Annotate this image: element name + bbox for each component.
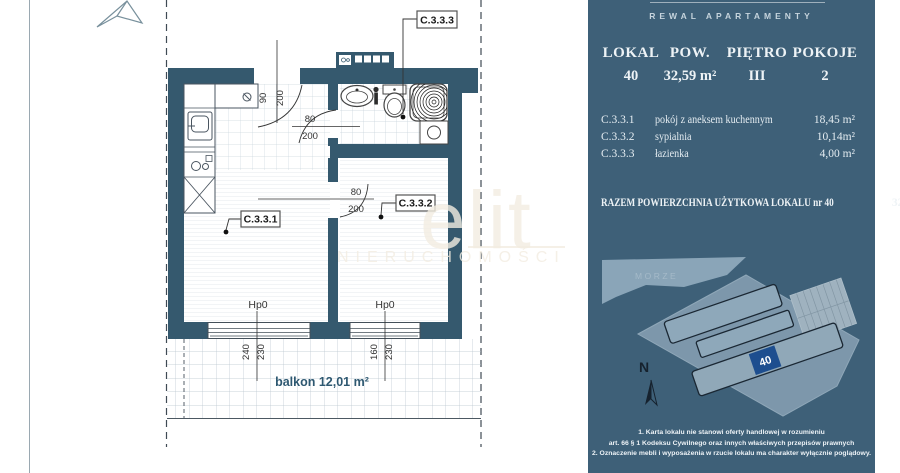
sea-label: MORZE xyxy=(635,271,678,281)
room-area: 10,14m² xyxy=(817,129,855,146)
svg-text:200: 200 xyxy=(275,90,286,106)
room-name: sypialnia xyxy=(655,129,817,146)
unit-summary: LOKAL 40 POW. 32,59 m² PIĘTRO III POKOJE… xyxy=(588,45,875,97)
room-list: C.3.3.1 pokój z aneksem kuchennym 18,45 … xyxy=(601,112,855,163)
logo-divider xyxy=(650,2,825,3)
room-area: 4,00 m² xyxy=(820,146,855,163)
disclaimer: 1. Karta lokalu nie stanowi oferty handl… xyxy=(588,428,875,460)
summary-pietro: PIĘTRO III xyxy=(722,45,792,85)
room-code: C.3.3.2 xyxy=(601,129,655,146)
svg-text:80: 80 xyxy=(305,114,316,125)
room-row: C.3.3.3 łazienka 4,00 m² xyxy=(601,146,855,163)
svg-text:C.3.3.3: C.3.3.3 xyxy=(420,15,454,27)
floor-plan-drawing: balkon 12,01 m² xyxy=(0,0,588,473)
svg-text:200: 200 xyxy=(348,204,364,215)
balcony-area: balkon 12,01 m² xyxy=(167,339,481,419)
svg-text:200: 200 xyxy=(302,131,318,142)
sill-height-right: Hp0 xyxy=(375,299,394,311)
svg-text:90: 90 xyxy=(258,93,269,104)
summary-pokoje: POKOJE 2 xyxy=(790,45,860,85)
site-map: MORZE 40 N xyxy=(588,246,875,418)
svg-text:240: 240 xyxy=(241,344,252,360)
room-row: C.3.3.1 pokój z aneksem kuchennym 18,45 … xyxy=(601,112,855,129)
total-area-row: RAZEM POWIERZCHNIA UŻYTKOWA LOKALU nr 40… xyxy=(601,197,855,209)
svg-text:230: 230 xyxy=(256,344,267,360)
summary-pow: POW. 32,59 m² xyxy=(650,45,730,85)
floor-plan-card: balkon 12,01 m² xyxy=(0,0,900,473)
north-arrow-icon: N xyxy=(639,359,657,405)
total-area-value: 32,59m² xyxy=(892,197,900,209)
window-left xyxy=(208,323,310,339)
svg-text:80: 80 xyxy=(351,187,362,198)
room-code: C.3.3.1 xyxy=(601,112,655,129)
total-area-label: RAZEM POWIERZCHNIA UŻYTKOWA LOKALU nr 40 xyxy=(601,197,834,209)
sill-height-left: Hp0 xyxy=(248,299,267,311)
room-area: 18,45 m² xyxy=(814,112,855,129)
room-row: C.3.3.2 sypialnia 10,14m² xyxy=(601,129,855,146)
svg-text:230: 230 xyxy=(384,344,395,360)
room-name: pokój z aneksem kuchennym xyxy=(655,112,814,129)
room-code: C.3.3.3 xyxy=(601,146,655,163)
brand-name: REWAL APARTAMENTY xyxy=(588,11,875,21)
room-name: łazienka xyxy=(655,146,820,163)
washing-machine-icon xyxy=(420,121,448,144)
washbasin-icon xyxy=(341,86,373,107)
north-plane-icon xyxy=(97,1,142,27)
info-panel: REWAL APARTAMENTY LOKAL 40 POW. 32,59 m²… xyxy=(588,0,875,473)
svg-text:160: 160 xyxy=(369,344,380,360)
svg-text:N: N xyxy=(639,359,649,375)
svg-text:C.3.3.2: C.3.3.2 xyxy=(399,198,433,210)
radiator-icon xyxy=(336,52,394,68)
balcony-label: balkon 12,01 m² xyxy=(275,375,369,389)
svg-text:C.3.3.1: C.3.3.1 xyxy=(244,214,278,226)
